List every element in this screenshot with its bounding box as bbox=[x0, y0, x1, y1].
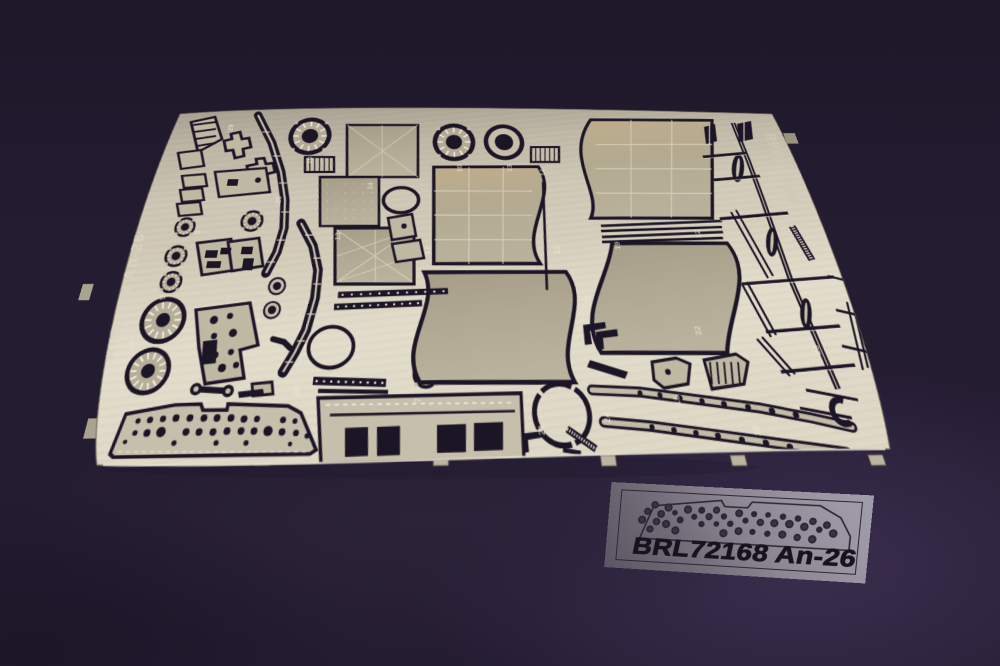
svg-text:10: 10 bbox=[456, 164, 464, 172]
svg-text:13: 13 bbox=[506, 164, 514, 172]
svg-text:19: 19 bbox=[613, 241, 623, 250]
svg-text:14: 14 bbox=[366, 182, 374, 190]
svg-text:26: 26 bbox=[292, 384, 303, 395]
svg-text:12: 12 bbox=[553, 246, 562, 255]
svg-text:29: 29 bbox=[227, 124, 236, 131]
svg-text:22: 22 bbox=[583, 295, 593, 305]
svg-text:13: 13 bbox=[334, 232, 343, 241]
svg-text:3: 3 bbox=[194, 230, 203, 235]
svg-text:7: 7 bbox=[414, 397, 424, 403]
svg-text:8: 8 bbox=[255, 317, 265, 322]
svg-text:24: 24 bbox=[602, 411, 613, 423]
svg-text:25: 25 bbox=[275, 196, 284, 204]
svg-text:21: 21 bbox=[537, 423, 548, 435]
svg-text:14: 14 bbox=[539, 168, 548, 176]
svg-text:9: 9 bbox=[158, 295, 168, 300]
svg-text:15: 15 bbox=[672, 394, 684, 405]
svg-text:10: 10 bbox=[306, 156, 315, 164]
svg-text:17: 17 bbox=[424, 246, 432, 255]
